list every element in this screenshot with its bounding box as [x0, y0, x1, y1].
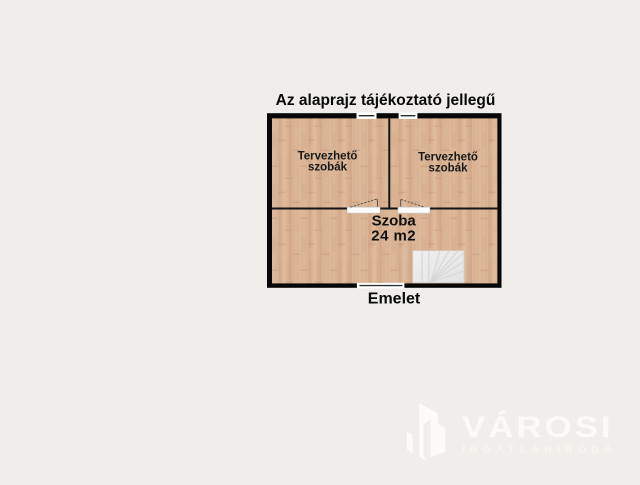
svg-text:szobák: szobák: [308, 162, 348, 174]
svg-text:24 m2: 24 m2: [371, 227, 416, 244]
svg-text:INGATLANIRODA: INGATLANIRODA: [462, 444, 617, 456]
svg-text:szobák: szobák: [429, 163, 469, 175]
svg-text:Tervezhető: Tervezhető: [298, 151, 358, 163]
svg-text:Emelet: Emelet: [368, 290, 421, 307]
svg-text:VÁROSI: VÁROSI: [462, 410, 614, 444]
svg-text:Az alaprajz tájékoztató jelleg: Az alaprajz tájékoztató jellegű: [276, 92, 496, 109]
svg-text:Tervezhető: Tervezhető: [418, 152, 478, 164]
